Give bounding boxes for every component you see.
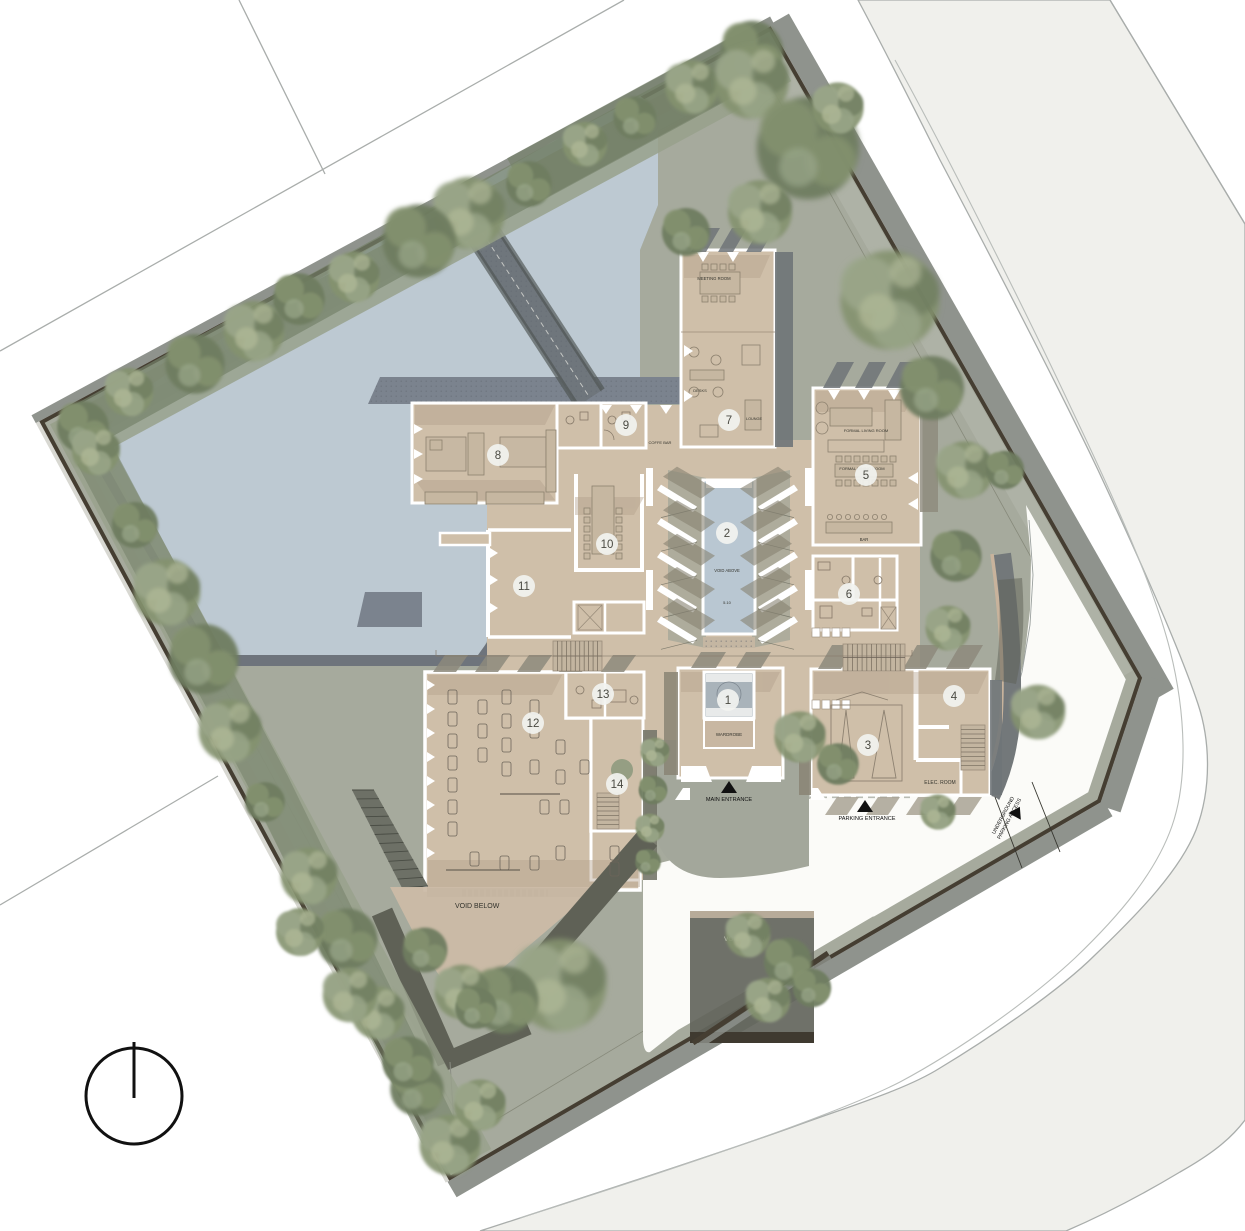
svg-text:4: 4 <box>951 691 958 703</box>
svg-text:5.10: 5.10 <box>723 600 732 605</box>
svg-text:ELEC. ROOM: ELEC. ROOM <box>924 780 955 786</box>
svg-text:2: 2 <box>724 528 730 540</box>
svg-text:8: 8 <box>495 450 501 462</box>
svg-text:MAIN ENTRANCE: MAIN ENTRANCE <box>706 797 753 803</box>
svg-text:1: 1 <box>725 695 731 707</box>
svg-text:10: 10 <box>601 539 614 551</box>
svg-text:LOUNGE: LOUNGE <box>746 417 763 421</box>
svg-text:14: 14 <box>611 779 624 791</box>
svg-text:MEETING ROOM: MEETING ROOM <box>697 276 731 281</box>
svg-text:6: 6 <box>846 589 852 601</box>
svg-text:11: 11 <box>518 581 530 593</box>
svg-text:PARKING ENTRANCE: PARKING ENTRANCE <box>838 816 895 822</box>
svg-text:12: 12 <box>527 718 540 730</box>
svg-text:13: 13 <box>597 689 610 701</box>
svg-text:FORMAL LIVING ROOM: FORMAL LIVING ROOM <box>844 428 888 433</box>
svg-text:BAR: BAR <box>860 537 869 542</box>
svg-text:3: 3 <box>865 740 871 752</box>
svg-text:WARDROBE: WARDROBE <box>716 732 742 737</box>
svg-text:VOID ABOVE: VOID ABOVE <box>714 568 740 573</box>
svg-text:VOID BELOW: VOID BELOW <box>455 903 500 910</box>
svg-text:COFFE BAR: COFFE BAR <box>649 440 672 445</box>
svg-text:9: 9 <box>623 420 629 432</box>
svg-text:5: 5 <box>863 470 869 482</box>
svg-text:DESKS: DESKS <box>693 388 707 393</box>
svg-text:7: 7 <box>726 415 732 427</box>
